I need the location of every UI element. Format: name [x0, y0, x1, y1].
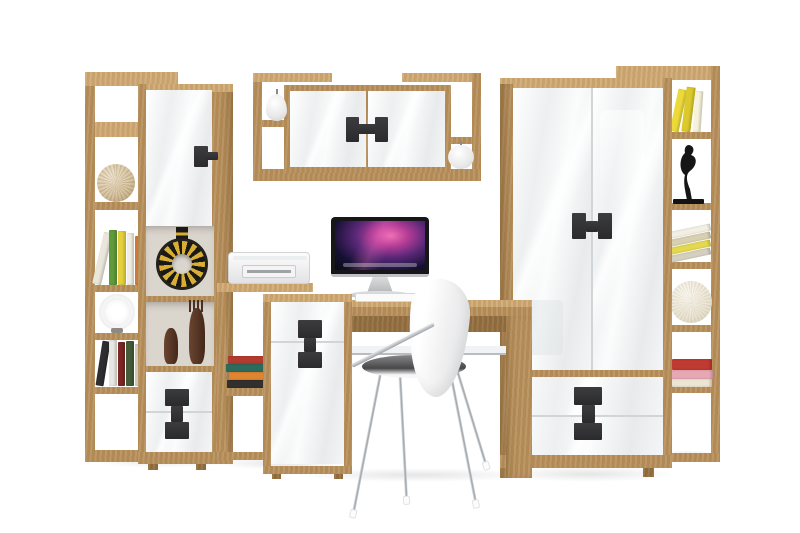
- tribal-ring-vase: [156, 238, 208, 290]
- printer-paper-tray: [242, 265, 296, 278]
- cabinet-foot: [196, 464, 206, 470]
- book-spine: [109, 340, 117, 386]
- cabinet-bottom-panel: [263, 466, 352, 474]
- wardrobe-top-panel: [500, 78, 672, 88]
- book-spine: [118, 231, 126, 285]
- shelf-board: [670, 262, 711, 269]
- printer: [228, 252, 310, 284]
- wall-shelf-side: [253, 73, 262, 179]
- vase-hole: [172, 254, 192, 274]
- book-stack: [670, 370, 713, 379]
- door-handle: [375, 117, 388, 142]
- drawer-handle: [574, 423, 602, 440]
- rattan-sphere-ornament: [670, 281, 712, 323]
- book-spine: [127, 233, 134, 285]
- drawer-handle: [171, 406, 183, 422]
- shelf-board: [262, 120, 284, 127]
- shelf-board: [670, 132, 711, 139]
- chair-foot-cap: [349, 509, 358, 519]
- imac-dock: [343, 263, 417, 267]
- wooden-figurine: [189, 308, 205, 364]
- sculpture-base: [673, 199, 704, 204]
- twine-ball-ornament: [97, 164, 135, 202]
- drawer-handle: [165, 389, 189, 406]
- stand-side-panel: [217, 292, 226, 460]
- cabinet-foot: [272, 474, 281, 479]
- shelf-board: [670, 203, 711, 210]
- wall-shelf-side: [472, 73, 481, 179]
- wall-shelf-top: [253, 73, 332, 82]
- book-stack: [672, 379, 712, 387]
- book-spine: [109, 230, 117, 285]
- book-spine: [118, 342, 125, 386]
- chair-foot-cap: [403, 496, 410, 505]
- furniture-scene: [0, 0, 800, 533]
- wall-shelf-top: [402, 73, 481, 82]
- shelf-board: [670, 325, 711, 332]
- door-handle: [298, 352, 322, 368]
- door-handle: [304, 338, 316, 352]
- stand-top-panel: [217, 283, 313, 292]
- door-handle: [298, 320, 322, 338]
- imac-bottom-edge: [331, 274, 429, 277]
- bookcase-side-panel: [85, 72, 95, 462]
- drawer-handle: [574, 387, 602, 405]
- bookcase-side-panel: [711, 66, 720, 462]
- keyboard: [355, 293, 417, 302]
- book-stack: [672, 359, 712, 370]
- cabinet-frame: [344, 302, 352, 466]
- shelf-board: [670, 386, 711, 393]
- shell-stand: [111, 328, 123, 333]
- printer-paper-slot: [247, 270, 291, 273]
- cabinet-frame: [138, 84, 146, 456]
- wardrobe-divider: [513, 370, 663, 377]
- chair-foot-cap: [472, 499, 481, 509]
- wooden-figurine: [164, 328, 178, 364]
- figurine-sculpture: [676, 144, 702, 202]
- cabinet-foot: [148, 464, 158, 470]
- wardrobe-side-panel: [663, 78, 672, 468]
- desk-side-panel: [506, 316, 532, 478]
- wardrobe-foot: [643, 468, 654, 477]
- apple-ornament: [448, 145, 474, 169]
- cabinet-top-panel: [263, 294, 352, 302]
- door-handle: [346, 117, 359, 142]
- door-handle: [586, 221, 598, 232]
- cabinet-frame: [263, 302, 271, 466]
- drawer-handle: [582, 405, 595, 423]
- spiral-shell-ornament: [99, 294, 135, 330]
- door-handle: [598, 213, 612, 239]
- book-spine: [693, 91, 704, 132]
- printer-control-strip: [233, 256, 307, 260]
- pear-ornament: [266, 94, 287, 121]
- chair-backrest: [403, 277, 473, 400]
- door-handle: [206, 152, 218, 160]
- cabinet-foot: [334, 474, 343, 479]
- imac-display: [331, 217, 429, 277]
- door-reflection: [600, 110, 644, 220]
- door-handle: [572, 213, 586, 239]
- book-spine: [126, 341, 134, 386]
- chair-leg: [352, 368, 383, 512]
- imac-screen: [335, 221, 425, 270]
- drawer-handle: [165, 422, 189, 439]
